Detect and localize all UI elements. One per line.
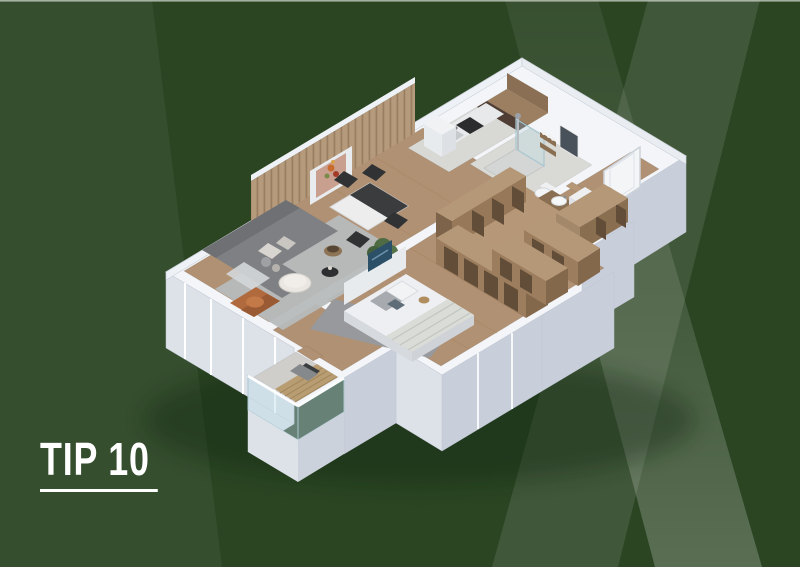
top-edge-hairline [0,0,800,2]
bedside-stool [419,297,430,304]
round-cushion [272,264,280,272]
vanity-faucet [564,196,567,199]
slide: TIP 10 [0,0,800,567]
shower-head [515,113,521,119]
round-cushion [261,257,271,267]
plan-type-label: TIP 10 [40,436,158,492]
